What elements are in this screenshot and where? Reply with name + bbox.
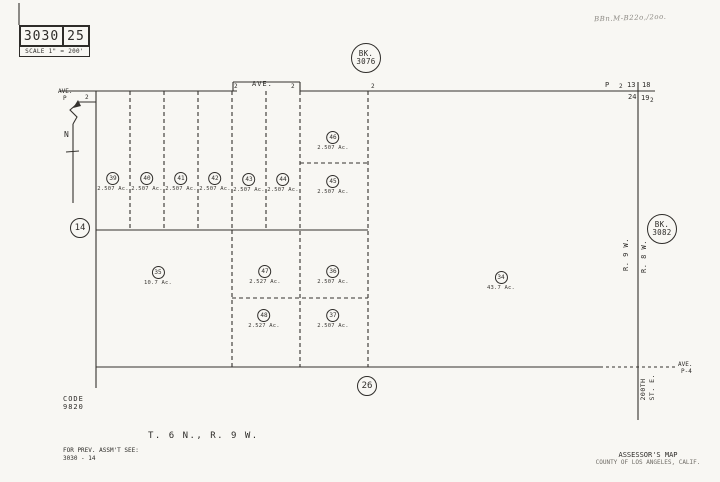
parcel-marker: 36 2.507 Ac.: [317, 265, 349, 285]
corner-section-19: 19: [641, 94, 649, 102]
book-circle-3076-num: 3076: [352, 58, 380, 66]
north-arrow-shaft: [70, 103, 78, 203]
assessor-subtitle: COUNTY OF LOS ANGELES, CALIF.: [596, 459, 701, 466]
parcel-acreage: 2.527 Ac.: [249, 279, 281, 285]
parcel-number: 46: [326, 131, 339, 144]
parcel-marker: 46 2.507 Ac.: [317, 131, 349, 151]
ave-p4-label: AVE. P-4: [678, 361, 692, 375]
north-label: N: [64, 130, 69, 139]
corner-section-18: 18: [642, 81, 650, 89]
corner-tick1: 2: [619, 83, 623, 90]
assessor-title: ASSESSOR'S MAP: [596, 451, 701, 459]
parcel-marker: 39 2.507 Ac.: [97, 172, 129, 192]
parcel-acreage: 2.507 Ac.: [317, 323, 349, 329]
map-page-number: 25: [64, 27, 88, 45]
parcel-acreage: 10.7 Ac.: [144, 280, 172, 286]
north-arrow-head: [73, 100, 81, 108]
dimension-tick-label: 2: [85, 94, 89, 101]
ave-p-line1: AVE.: [58, 88, 72, 95]
range-east-label: R. 8 W.: [640, 240, 648, 273]
parcel-acreage: 2.507 Ac.: [97, 186, 129, 192]
range-west-label: R. 9 W.: [622, 238, 630, 271]
map-linework: [0, 0, 720, 482]
dimension-tick-label: 2: [371, 83, 375, 90]
parcel-marker: 44 2.507 Ac.: [267, 173, 299, 193]
code-label: CODE: [63, 395, 84, 403]
parcel-number: 34: [495, 271, 508, 284]
parcel-number: 37: [326, 309, 339, 322]
section-circle-14: 14: [70, 218, 90, 238]
parcel-acreage: 43.7 Ac.: [487, 285, 515, 291]
scale-label: SCALE 1" = 200': [19, 47, 90, 57]
map-book-number: 3030: [21, 27, 64, 45]
corner-section-24: 24: [628, 93, 636, 101]
township-label: T. 6 N., R. 9 W.: [148, 431, 259, 441]
parcel-marker: 35 10.7 Ac.: [144, 266, 172, 286]
section-circle-26: 26: [357, 376, 377, 396]
parcel-marker: 45 2.507 Ac.: [317, 175, 349, 195]
parcel-number: 42: [208, 172, 221, 185]
corner-tick2: 2: [650, 97, 654, 104]
parcel-marker: 47 2.527 Ac.: [249, 265, 281, 285]
prev-assmt-line2: 3030 - 14: [63, 455, 139, 462]
street-200th-label: 200TH ST. E.: [639, 374, 656, 400]
book-circle-3076: BK. 3076: [351, 43, 381, 73]
corner-section-13: 13: [627, 81, 635, 89]
parcel-marker: 48 2.527 Ac.: [248, 309, 280, 329]
parcel-number: 36: [326, 265, 339, 278]
parcel-acreage: 2.507 Ac.: [317, 189, 349, 195]
book-circle-3082-num: 3082: [648, 229, 676, 237]
parcel-number: 41: [174, 172, 187, 185]
code-block: CODE 9820: [63, 395, 84, 411]
parcel-marker: 42 2.507 Ac.: [199, 172, 231, 192]
parcel-number: 39: [106, 172, 119, 185]
parcel-acreage: 2.507 Ac.: [233, 187, 265, 193]
street-200th-line1: 200TH: [639, 374, 647, 400]
north-arrow-tick: [66, 151, 79, 152]
parcel-number: 45: [326, 175, 339, 188]
lot-dividers-top: [130, 91, 266, 230]
parcel-acreage: 2.527 Ac.: [248, 323, 280, 329]
parcel-marker: 40 2.507 Ac.: [131, 172, 163, 192]
parcel-number: 44: [276, 173, 289, 186]
parcel-number: 47: [258, 265, 271, 278]
ave-center-label: AVE.: [252, 80, 273, 88]
book-circle-3082: BK. 3082: [647, 214, 677, 244]
parcel-acreage: 2.507 Ac.: [199, 186, 231, 192]
parcel-marker: 41 2.507 Ac.: [165, 172, 197, 192]
parcel-marker: 34 43.7 Ac.: [487, 271, 515, 291]
street-200th-line2: ST. E.: [648, 374, 656, 400]
parcel-acreage: 2.507 Ac.: [131, 186, 163, 192]
assessor-block: ASSESSOR'S MAP COUNTY OF LOS ANGELES, CA…: [596, 451, 701, 466]
prev-assmt-block: FOR PREV. ASSM'T SEE: 3030 - 14: [63, 447, 139, 462]
parcel-acreage: 2.507 Ac.: [165, 186, 197, 192]
assessor-map-page: 3030 25 SCALE 1" = 200' BBn.M-B22o,/2oo.…: [0, 0, 720, 482]
title-block: 3030 25: [19, 25, 90, 47]
parcel-number: 48: [257, 309, 270, 322]
dimension-tick-label: 2: [291, 83, 295, 90]
parcel-number: 43: [242, 173, 255, 186]
corner-p: P: [605, 81, 609, 89]
parcel-acreage: 2.507 Ac.: [317, 279, 349, 285]
parcel-acreage: 2.507 Ac.: [267, 187, 299, 193]
parcel-acreage: 2.507 Ac.: [317, 145, 349, 151]
parcel-number: 40: [140, 172, 153, 185]
parcel-number: 35: [152, 266, 165, 279]
prev-assmt-line1: FOR PREV. ASSM'T SEE:: [63, 447, 139, 454]
ave-p-label: AVE. P: [58, 88, 72, 102]
ave-p4-line2: P-4: [681, 368, 692, 375]
parcel-marker: 43 2.507 Ac.: [233, 173, 265, 193]
code-value: 9820: [63, 403, 84, 411]
dimension-tick-label: 2: [234, 83, 238, 90]
ave-p4-line1: AVE.: [678, 361, 692, 368]
ave-p-line2: P: [63, 95, 72, 102]
parcel-marker: 37 2.507 Ac.: [317, 309, 349, 329]
